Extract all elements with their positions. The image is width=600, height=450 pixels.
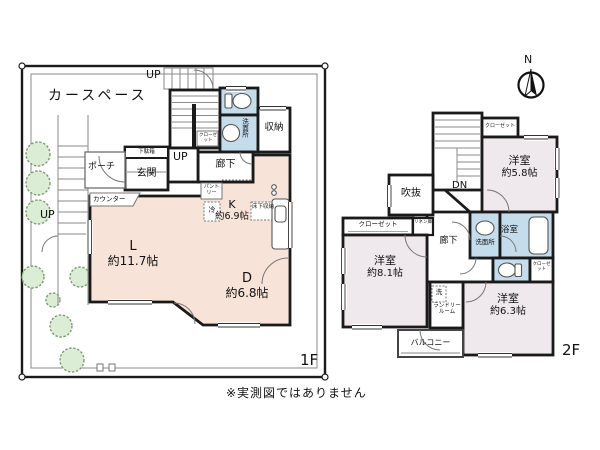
living-size: 約11.7帖 — [93, 255, 173, 269]
exterior-steps-top — [164, 68, 213, 89]
fridge-label: 冷 — [204, 206, 220, 214]
north-arrow-icon — [519, 69, 544, 98]
floorplan-canvas: カースペース UP UP UP ポーチ 玄関 下駄箱 カウンター L 約11.7… — [0, 0, 600, 450]
toilet-icon-2f — [499, 263, 522, 277]
stair-closet-label: クローゼット — [198, 133, 218, 143]
up-left-label: UP — [40, 209, 55, 222]
shoe-cabinet-label: 下駄箱 — [125, 149, 168, 155]
compass-n-label: N — [524, 54, 532, 67]
porch-label: ポーチ — [88, 162, 115, 172]
disclaimer-note: ※実測図ではありません — [226, 387, 367, 401]
pantry-label: パントリー — [202, 185, 221, 197]
closet-c-label: クローゼット — [531, 262, 552, 272]
toilet-icon-1f — [225, 94, 251, 109]
counter-label: カウンター — [93, 196, 126, 203]
room-b-size: 約8.1帖 — [343, 268, 427, 280]
sink-icon-1f — [223, 125, 240, 142]
closet-b-label: クローゼット — [343, 221, 413, 228]
bathroom-label: 浴室 — [501, 226, 518, 236]
garden-trees — [22, 142, 90, 372]
closet-a-label: クローゼット — [482, 124, 518, 130]
washroom-2f-label: 洗面所 — [468, 239, 502, 246]
corridor-1f-label: 廊下 — [198, 159, 253, 171]
room-b-name: 洋室 — [343, 255, 427, 268]
dining-size: 約6.8帖 — [207, 287, 287, 301]
up-top-label: UP — [146, 69, 161, 82]
dining-room-label: D 約6.8帖 — [207, 272, 287, 301]
western-room-b-label: 洋室 約8.1帖 — [343, 255, 427, 279]
room-c-size: 約6.3帖 — [463, 306, 553, 318]
dining-name: D — [207, 272, 287, 287]
room-a-name: 洋室 — [482, 155, 557, 168]
dn-label: DN — [452, 180, 467, 192]
void-label: 吹抜 — [389, 188, 433, 200]
living-name: L — [93, 240, 173, 255]
laundry-room-label: ランドリールーム — [431, 303, 463, 316]
room-a-size: 約5.8帖 — [482, 168, 557, 180]
up-inner-label: UP — [173, 151, 188, 164]
sink-icon-2f — [476, 221, 494, 235]
underfloor-storage-label: 床下収納 — [252, 204, 274, 210]
car-space-label: カースペース — [48, 88, 148, 104]
western-room-a-label: 洋室 約5.8帖 — [482, 155, 557, 179]
storage-label: 収納 — [258, 123, 290, 134]
western-room-c-label: 洋室 約6.3帖 — [463, 293, 553, 317]
corridor-2f-label: 廊下 — [427, 236, 470, 246]
room-c-name: 洋室 — [463, 293, 553, 306]
western-room-b — [343, 235, 427, 327]
living-room-label: L 約11.7帖 — [93, 240, 173, 269]
washroom-1f-label: 洗面所 — [240, 118, 247, 152]
linen-label: リネン庫 — [414, 220, 432, 225]
floor1-label: 1F — [300, 352, 318, 369]
entrance-label: 玄関 — [125, 168, 168, 180]
bathtub-icon — [529, 217, 548, 254]
washer-label: 洗 — [432, 289, 446, 296]
floor2-label: 2F — [562, 342, 580, 359]
balcony-label: バルコニー — [398, 338, 463, 347]
staircase-2f — [433, 113, 482, 212]
